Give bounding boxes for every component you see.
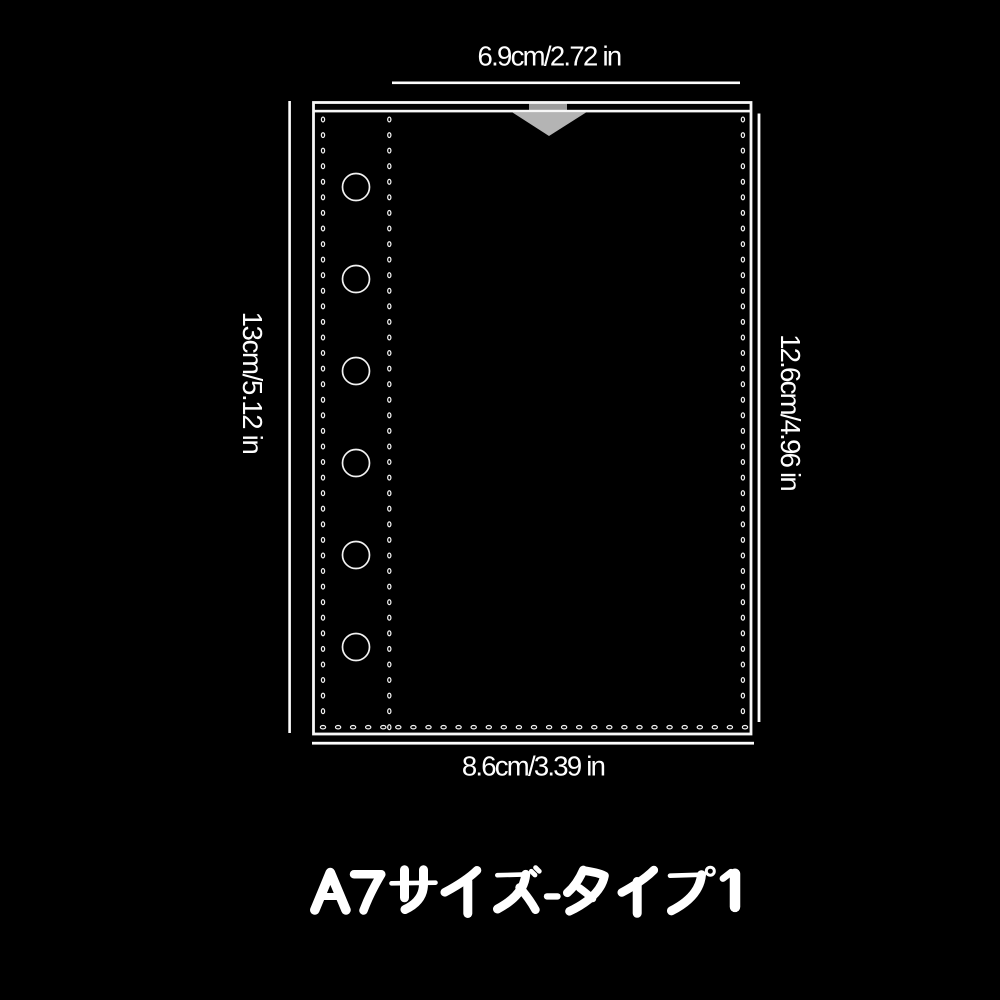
svg-text:8.6cm/3.39 in: 8.6cm/3.39 in <box>462 751 605 782</box>
svg-text:6.9cm/2.72 in: 6.9cm/2.72 in <box>478 41 621 72</box>
svg-text:13cm/5.12 in: 13cm/5.12 in <box>237 312 268 454</box>
svg-text:12.6cm/4.96 in: 12.6cm/4.96 in <box>775 334 806 490</box>
